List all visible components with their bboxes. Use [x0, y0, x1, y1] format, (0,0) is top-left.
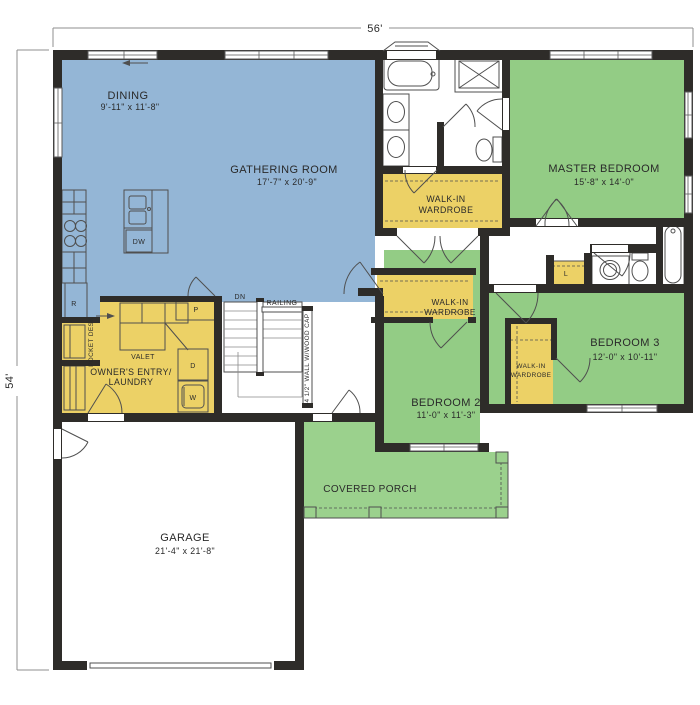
- bay-window: [383, 42, 440, 51]
- wc-door: [443, 104, 475, 127]
- wc-partition: [437, 122, 444, 168]
- dining-label: DINING: [108, 90, 149, 102]
- toilet-icon: [632, 253, 648, 260]
- railing-bar: [262, 307, 302, 312]
- master-bedroom-label: MASTER BEDROOM: [548, 163, 659, 175]
- railing-label: RAILING: [267, 300, 298, 307]
- half-wall-label: 44 1/2" WALL W/WOOD CAP: [304, 313, 311, 406]
- valet-label: VALET: [131, 354, 155, 361]
- porch-post: [304, 507, 316, 518]
- master-bath-door: [477, 99, 502, 130]
- garage-label: GARAGE: [160, 532, 209, 544]
- window: [685, 176, 692, 213]
- svg-text:WARDROBE: WARDROBE: [511, 372, 552, 379]
- master-wardrobe-label: WALK-IN: [426, 194, 465, 204]
- bedroom3-size: 12'-0" x 10'-11": [593, 352, 658, 362]
- porch-post: [369, 507, 381, 518]
- toilet-icon: [476, 139, 492, 161]
- bedroom2-label: BEDROOM 2: [411, 397, 481, 409]
- dishwasher-label: DW: [133, 239, 145, 246]
- washer-label: W: [189, 395, 196, 402]
- covered-porch-label: COVERED PORCH: [323, 484, 417, 495]
- dim-width-label: 56': [367, 23, 383, 35]
- floor-plan-page: 56' 54' DINING 9'-11" x 11'-8" GATHERING…: [0, 0, 700, 700]
- bedroom3-wardrobe-label: WALK-IN: [516, 363, 545, 370]
- room-master-bedroom-fill: [510, 60, 684, 220]
- master-bath-fixtures: [383, 57, 503, 168]
- svg-text:WARDROBE: WARDROBE: [419, 205, 474, 215]
- svg-text:LAUNDRY: LAUNDRY: [109, 377, 154, 387]
- garage-door: [90, 663, 271, 668]
- owners-entry-label: OWNER'S ENTRY/: [90, 367, 172, 377]
- dim-height-label: 54': [4, 373, 16, 389]
- svg-text:WARDROBE: WARDROBE: [424, 307, 476, 317]
- porch-post: [496, 452, 508, 463]
- stairs-dn-label: DN: [235, 294, 246, 301]
- gathering-size: 17'-7" x 20'-9": [257, 177, 317, 187]
- bedroom2-size: 11'-0" x 11'-3": [417, 410, 476, 420]
- master-bedroom-size: 15'-8" x 14'-0": [574, 177, 634, 187]
- dryer-label: D: [190, 363, 195, 370]
- garage-size: 21'-4" x 21'-8": [155, 546, 215, 556]
- refrigerator-label: R: [71, 301, 76, 308]
- bedroom3-label: BEDROOM 3: [590, 337, 660, 349]
- pocket-desk-label: POCKET DESK: [88, 317, 95, 367]
- dining-size: 9'-11" x 11'-8": [101, 102, 160, 112]
- linen-label: L: [564, 271, 568, 278]
- garage-side-door: [62, 429, 88, 458]
- gathering-label: GATHERING ROOM: [230, 164, 337, 176]
- pantry-label: P: [193, 307, 198, 314]
- hall-bath-fixtures: [592, 222, 684, 287]
- porch-post: [496, 507, 508, 518]
- floor-plan-drawing: 56' 54' DINING 9'-11" x 11'-8" GATHERING…: [0, 0, 700, 700]
- bedroom2-wardrobe-label: WALK-IN: [431, 297, 468, 307]
